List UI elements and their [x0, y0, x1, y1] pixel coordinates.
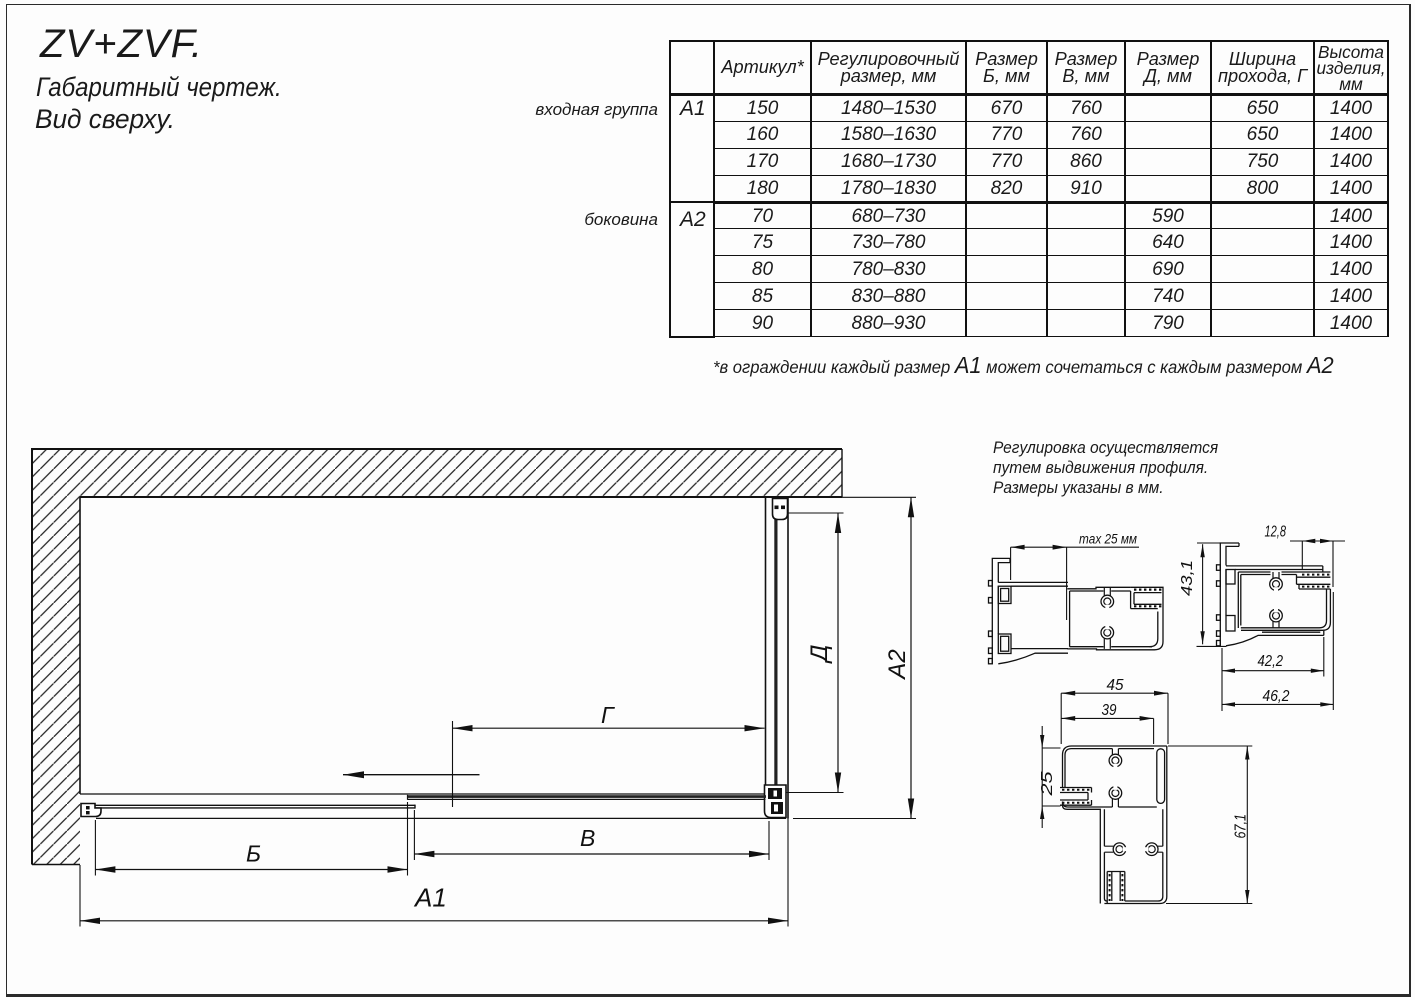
- svg-text:45: 45: [1107, 677, 1124, 694]
- svg-text:67,1: 67,1: [1233, 814, 1250, 839]
- svg-text:Г: Г: [601, 702, 615, 728]
- svg-text:max 25 мм: max 25 мм: [1079, 532, 1137, 547]
- svg-text:43,1: 43,1: [1179, 560, 1196, 596]
- svg-text:39: 39: [1102, 702, 1117, 719]
- svg-text:12,8: 12,8: [1265, 524, 1287, 541]
- svg-text:42,2: 42,2: [1258, 653, 1284, 670]
- svg-text:25: 25: [1039, 771, 1056, 796]
- svg-text:А1: А1: [413, 883, 447, 913]
- svg-text:Д: Д: [806, 644, 833, 664]
- svg-text:А2: А2: [884, 649, 911, 680]
- svg-text:46,2: 46,2: [1263, 688, 1290, 705]
- svg-text:Б: Б: [246, 841, 261, 867]
- svg-text:В: В: [580, 825, 595, 851]
